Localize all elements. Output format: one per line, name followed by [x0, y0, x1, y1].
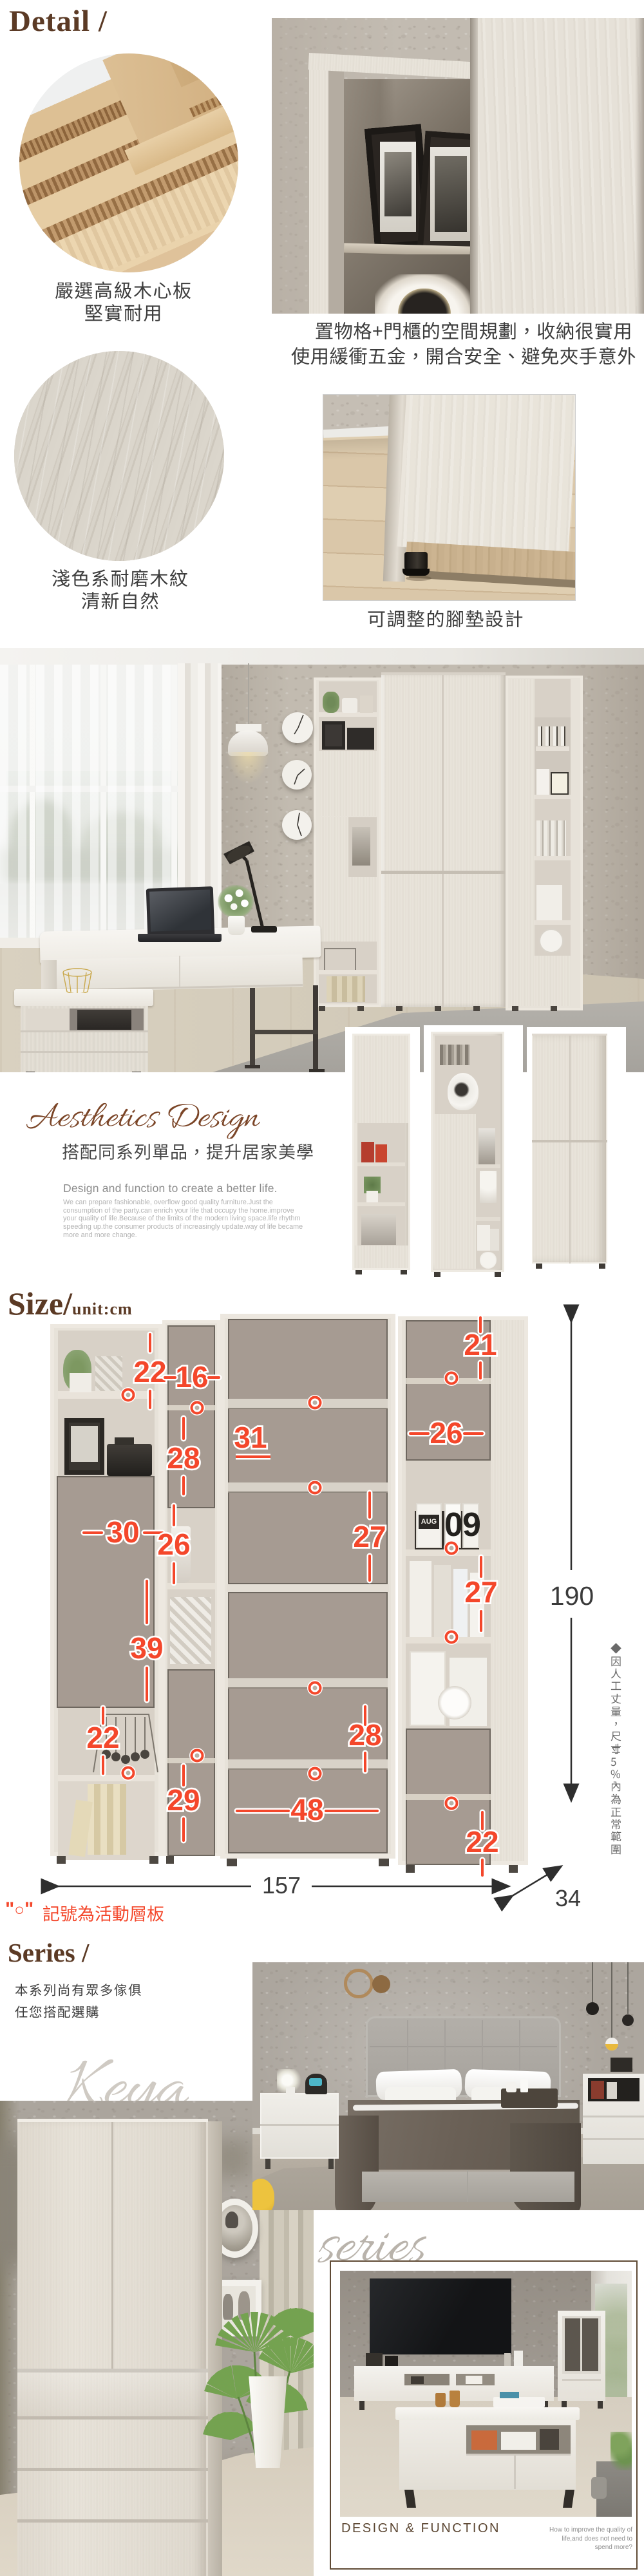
svg-text:26: 26 — [157, 1528, 190, 1561]
svg-text:28: 28 — [167, 1441, 200, 1475]
svg-text:157: 157 — [262, 1872, 301, 1899]
svg-text:39: 39 — [130, 1631, 163, 1665]
svg-text:22: 22 — [133, 1355, 166, 1388]
svg-text:16: 16 — [175, 1360, 208, 1394]
svg-text:29: 29 — [167, 1783, 200, 1817]
svg-text:31: 31 — [234, 1421, 267, 1454]
svg-text:21: 21 — [464, 1328, 497, 1361]
svg-text:26: 26 — [430, 1416, 462, 1450]
svg-text:28: 28 — [348, 1718, 381, 1752]
svg-text:22: 22 — [86, 1721, 119, 1754]
svg-text:34: 34 — [555, 1885, 581, 1911]
svg-text:27: 27 — [353, 1520, 386, 1553]
svg-text:48: 48 — [290, 1793, 323, 1826]
svg-text:22: 22 — [466, 1825, 498, 1859]
svg-text:27: 27 — [464, 1575, 497, 1609]
svg-text:190: 190 — [550, 1581, 594, 1611]
svg-text:30: 30 — [106, 1515, 139, 1549]
